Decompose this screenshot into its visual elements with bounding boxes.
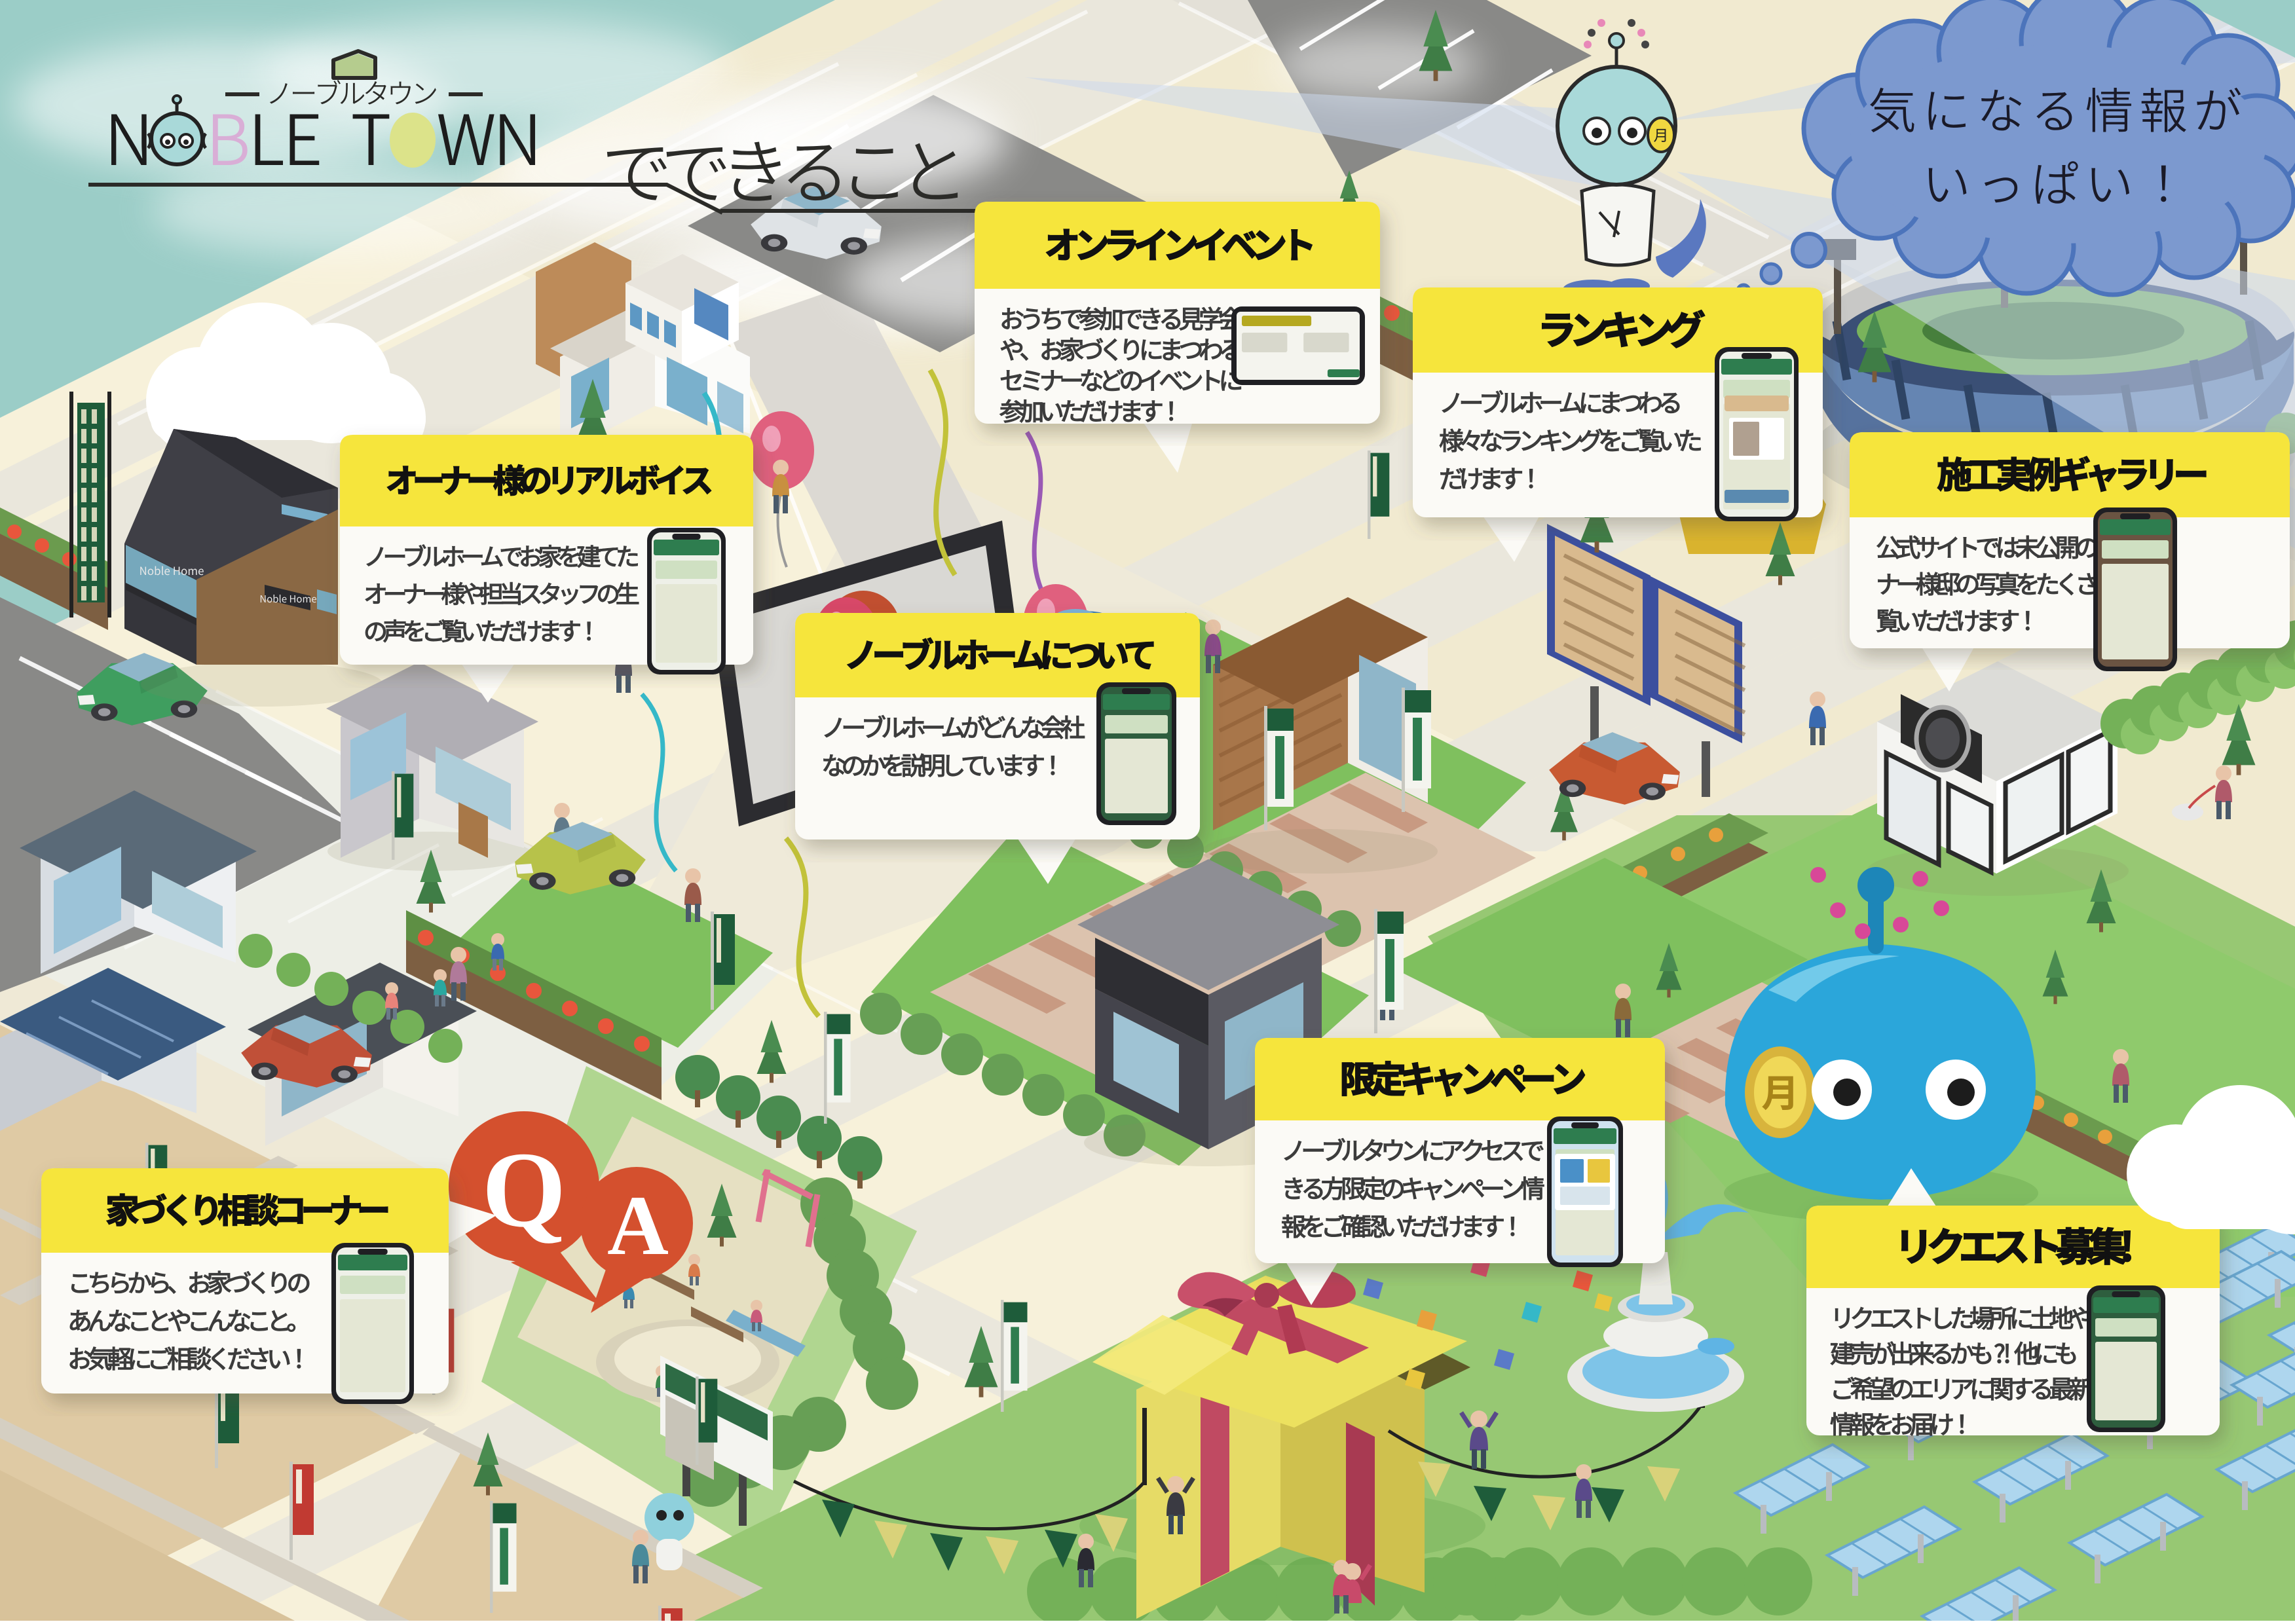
svg-text:Q: Q <box>482 1130 566 1249</box>
svg-text:A: A <box>607 1179 669 1273</box>
